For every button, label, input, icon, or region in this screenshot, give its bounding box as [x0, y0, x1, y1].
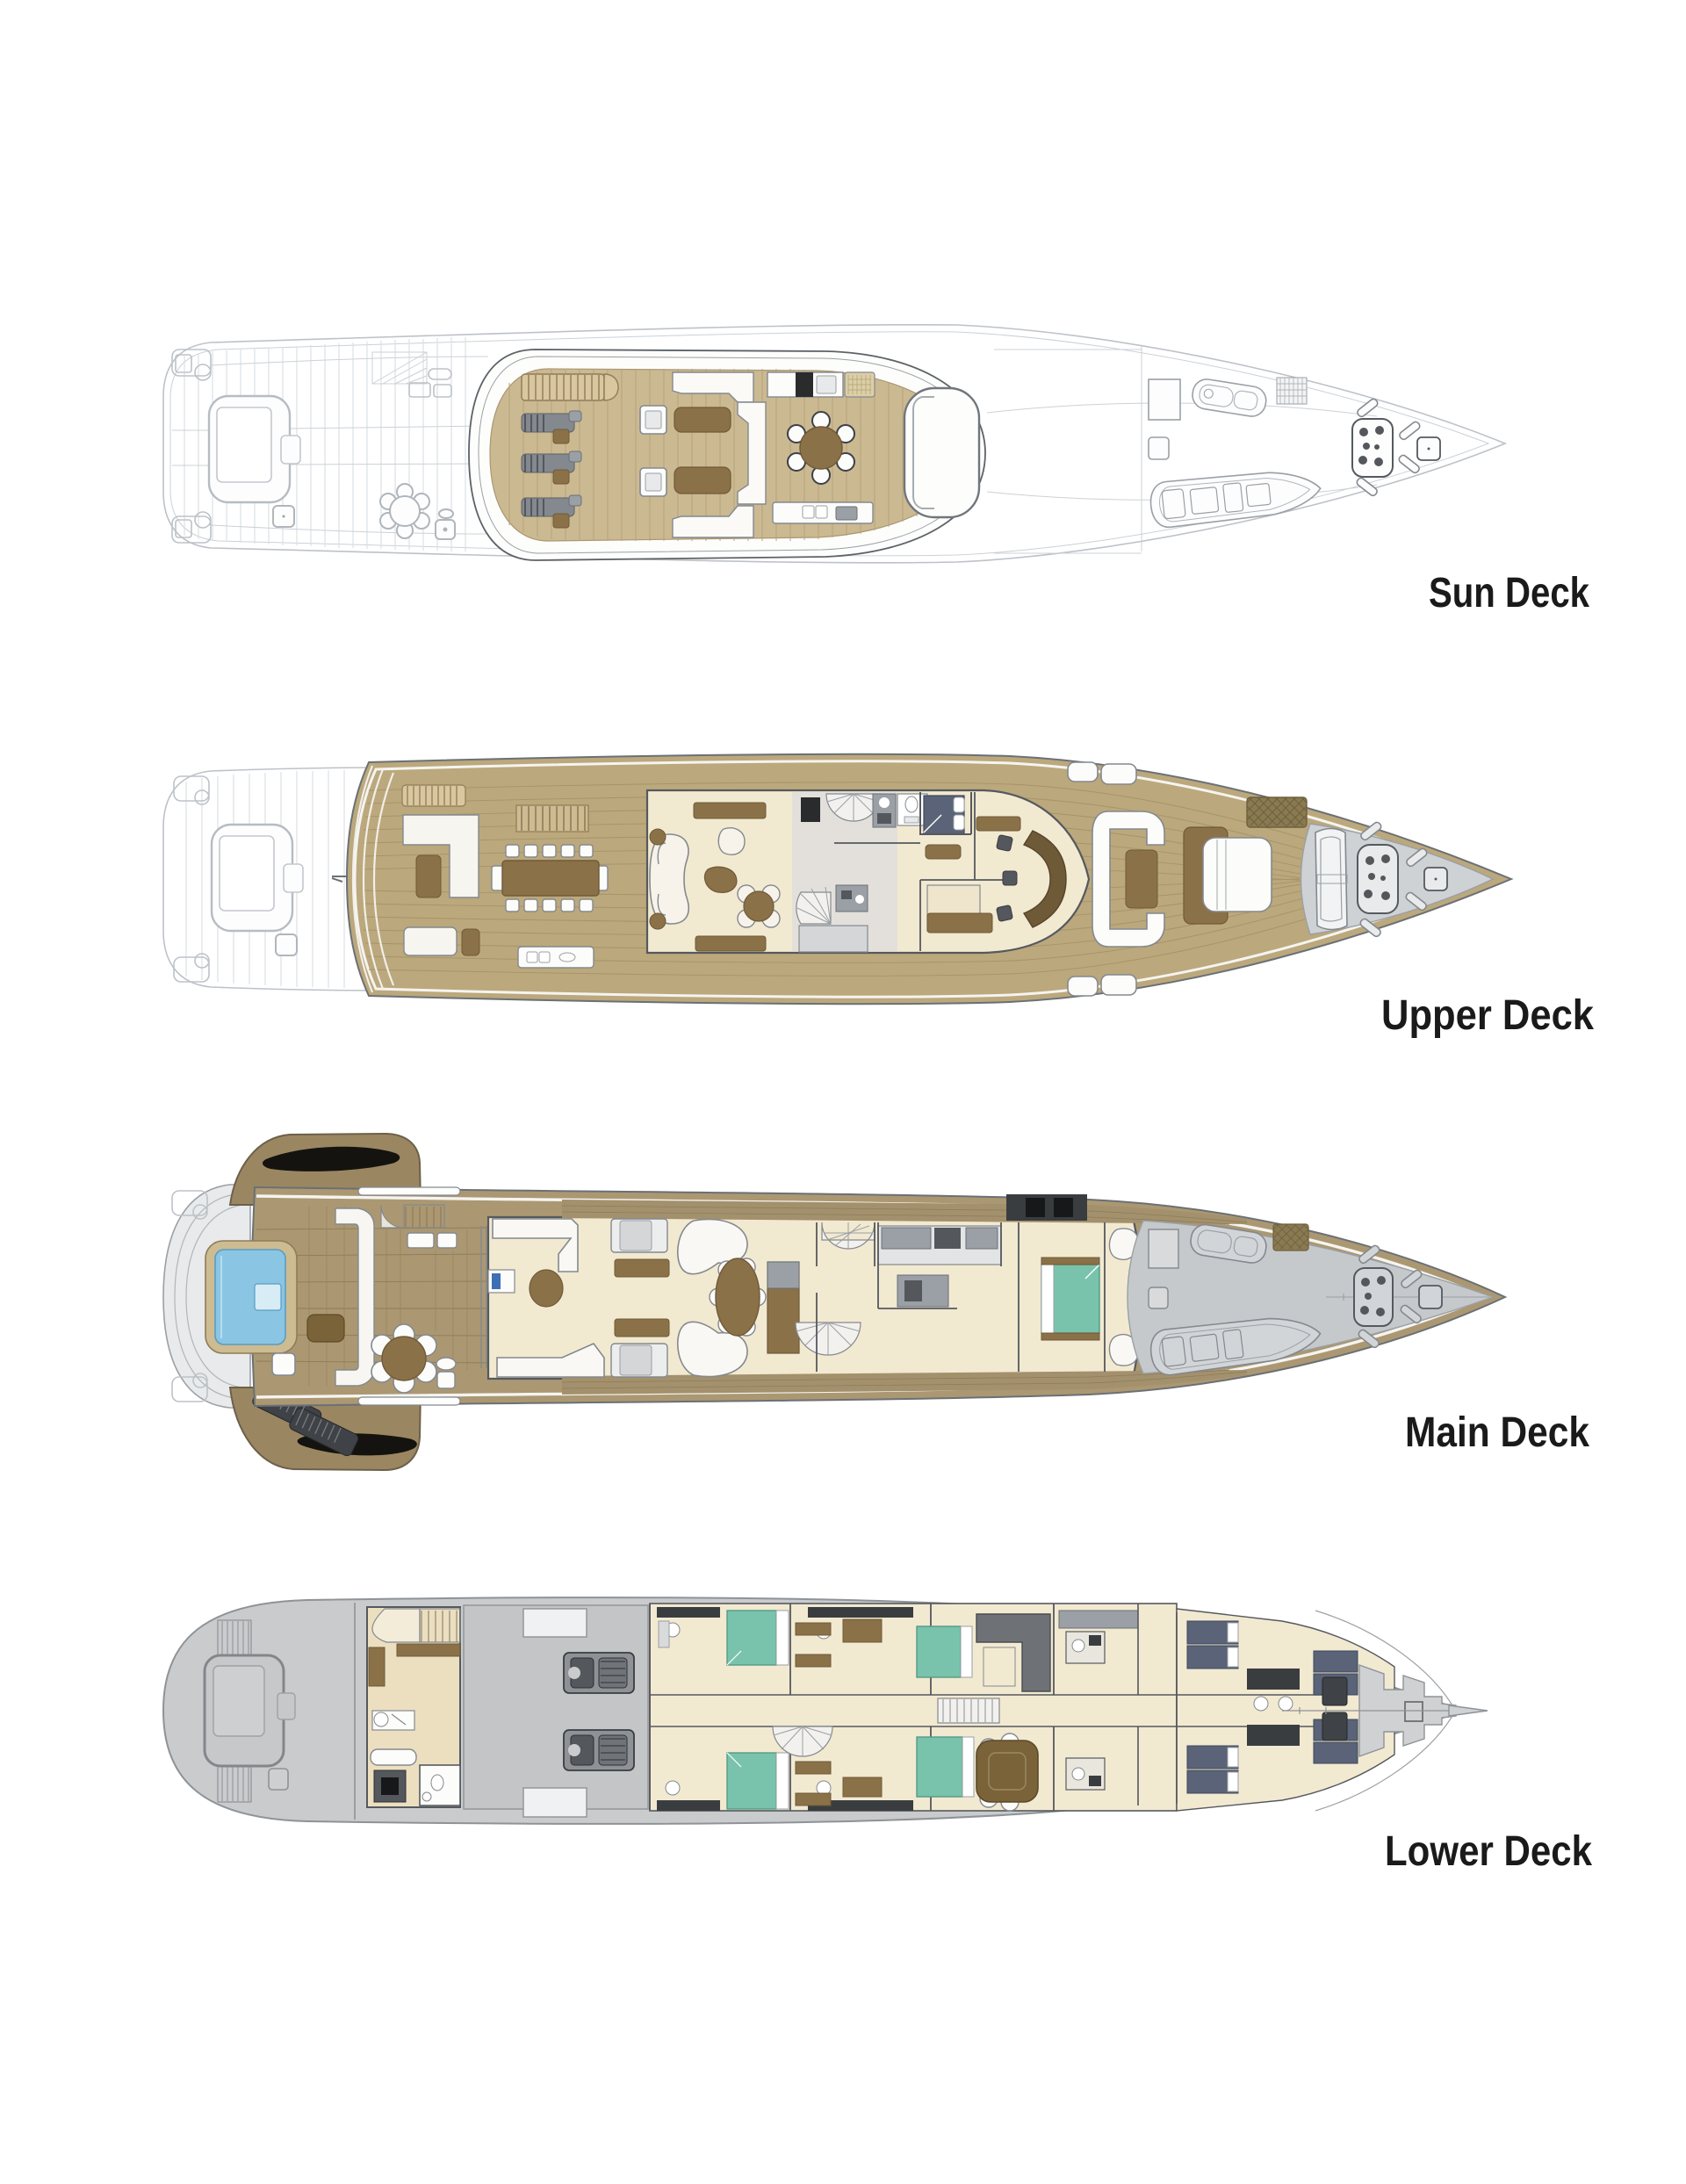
- svg-text:Lower Deck: Lower Deck: [1385, 1828, 1592, 1875]
- svg-text:Upper Deck: Upper Deck: [1381, 992, 1594, 1039]
- svg-text:Sun Deck: Sun Deck: [1429, 570, 1589, 616]
- svg-text:Main Deck: Main Deck: [1405, 1409, 1589, 1456]
